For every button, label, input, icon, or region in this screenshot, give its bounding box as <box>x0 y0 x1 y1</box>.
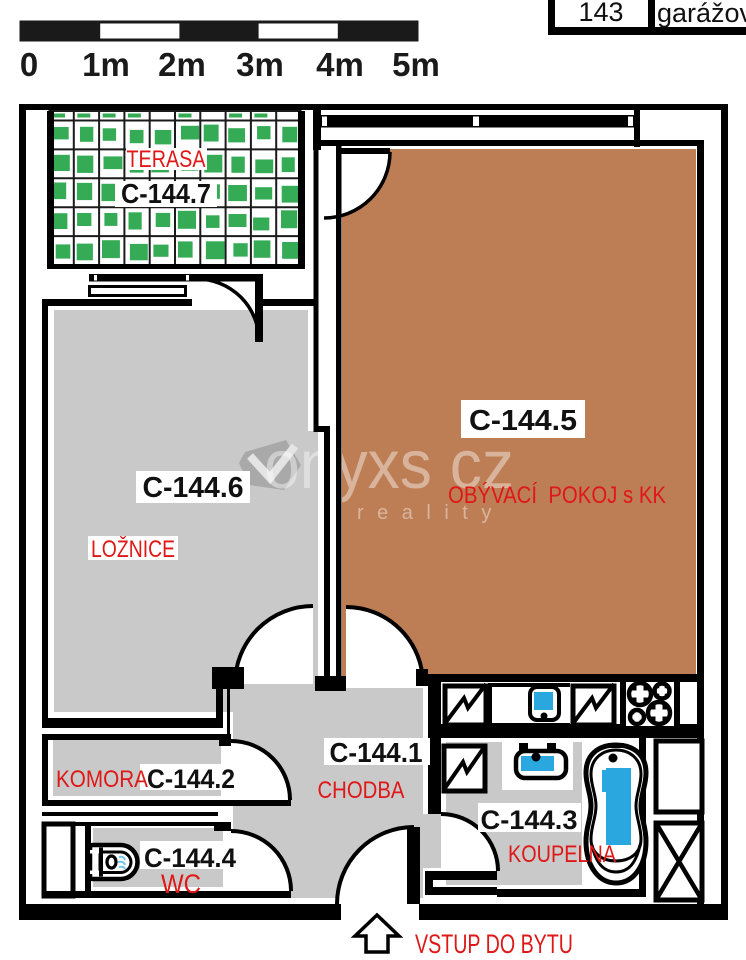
svg-text:143: 143 <box>578 0 623 27</box>
svg-text:C-144.1: C-144.1 <box>330 737 423 768</box>
svg-text:C-144.5: C-144.5 <box>469 405 577 437</box>
svg-text:CHODBA: CHODBA <box>318 777 405 804</box>
svg-text:1m: 1m <box>82 46 130 83</box>
svg-text:C-144.6: C-144.6 <box>143 472 244 504</box>
svg-text:garážové stání: garážové stání <box>657 0 746 28</box>
svg-text:2m: 2m <box>158 46 206 83</box>
svg-text:KOMORA: KOMORA <box>56 766 148 793</box>
svg-text:VSTUP DO BYTU: VSTUP DO BYTU <box>415 929 573 959</box>
svg-text:0: 0 <box>20 46 38 83</box>
svg-text:4m: 4m <box>316 46 364 83</box>
svg-text:KOUPELNA: KOUPELNA <box>508 841 616 868</box>
svg-text:TERASA: TERASA <box>127 146 206 173</box>
svg-text:OBÝVACÍ POKOJ s KK: OBÝVACÍ POKOJ s KK <box>448 482 666 509</box>
svg-text:WC: WC <box>161 869 201 899</box>
svg-text:C-144.3: C-144.3 <box>481 805 578 835</box>
svg-text:C-144.7: C-144.7 <box>121 178 211 209</box>
svg-text:LOŽNICE: LOŽNICE <box>91 536 175 563</box>
svg-text:C-144.2: C-144.2 <box>147 764 235 794</box>
svg-text:3m: 3m <box>236 46 284 83</box>
svg-text:5m: 5m <box>392 46 440 83</box>
